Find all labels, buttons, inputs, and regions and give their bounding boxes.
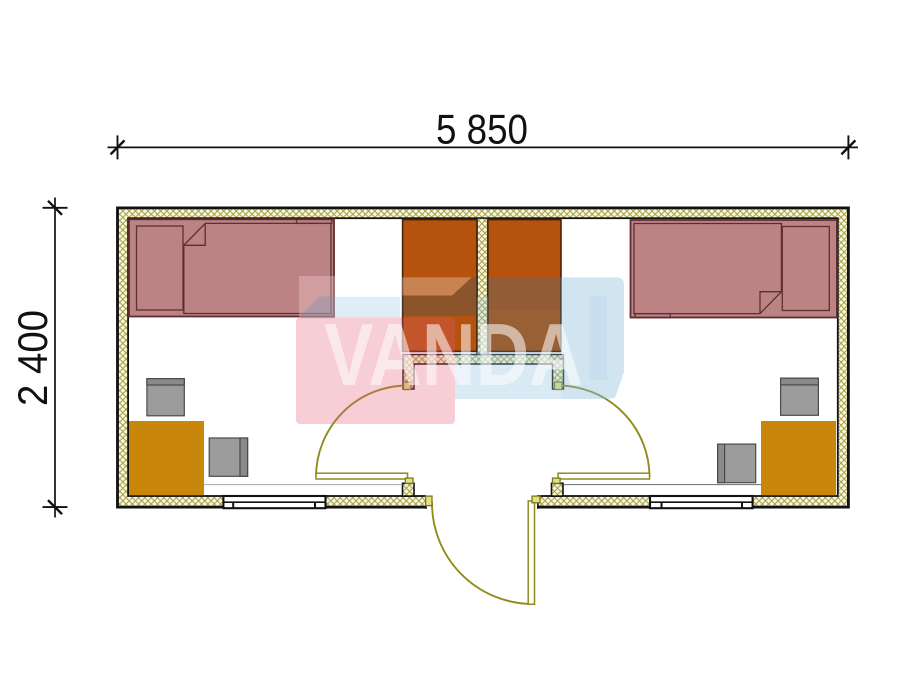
svg-text:VANDA: VANDA	[324, 305, 583, 404]
svg-text:5 850: 5 850	[436, 106, 528, 153]
svg-text:2 400: 2 400	[9, 310, 56, 406]
